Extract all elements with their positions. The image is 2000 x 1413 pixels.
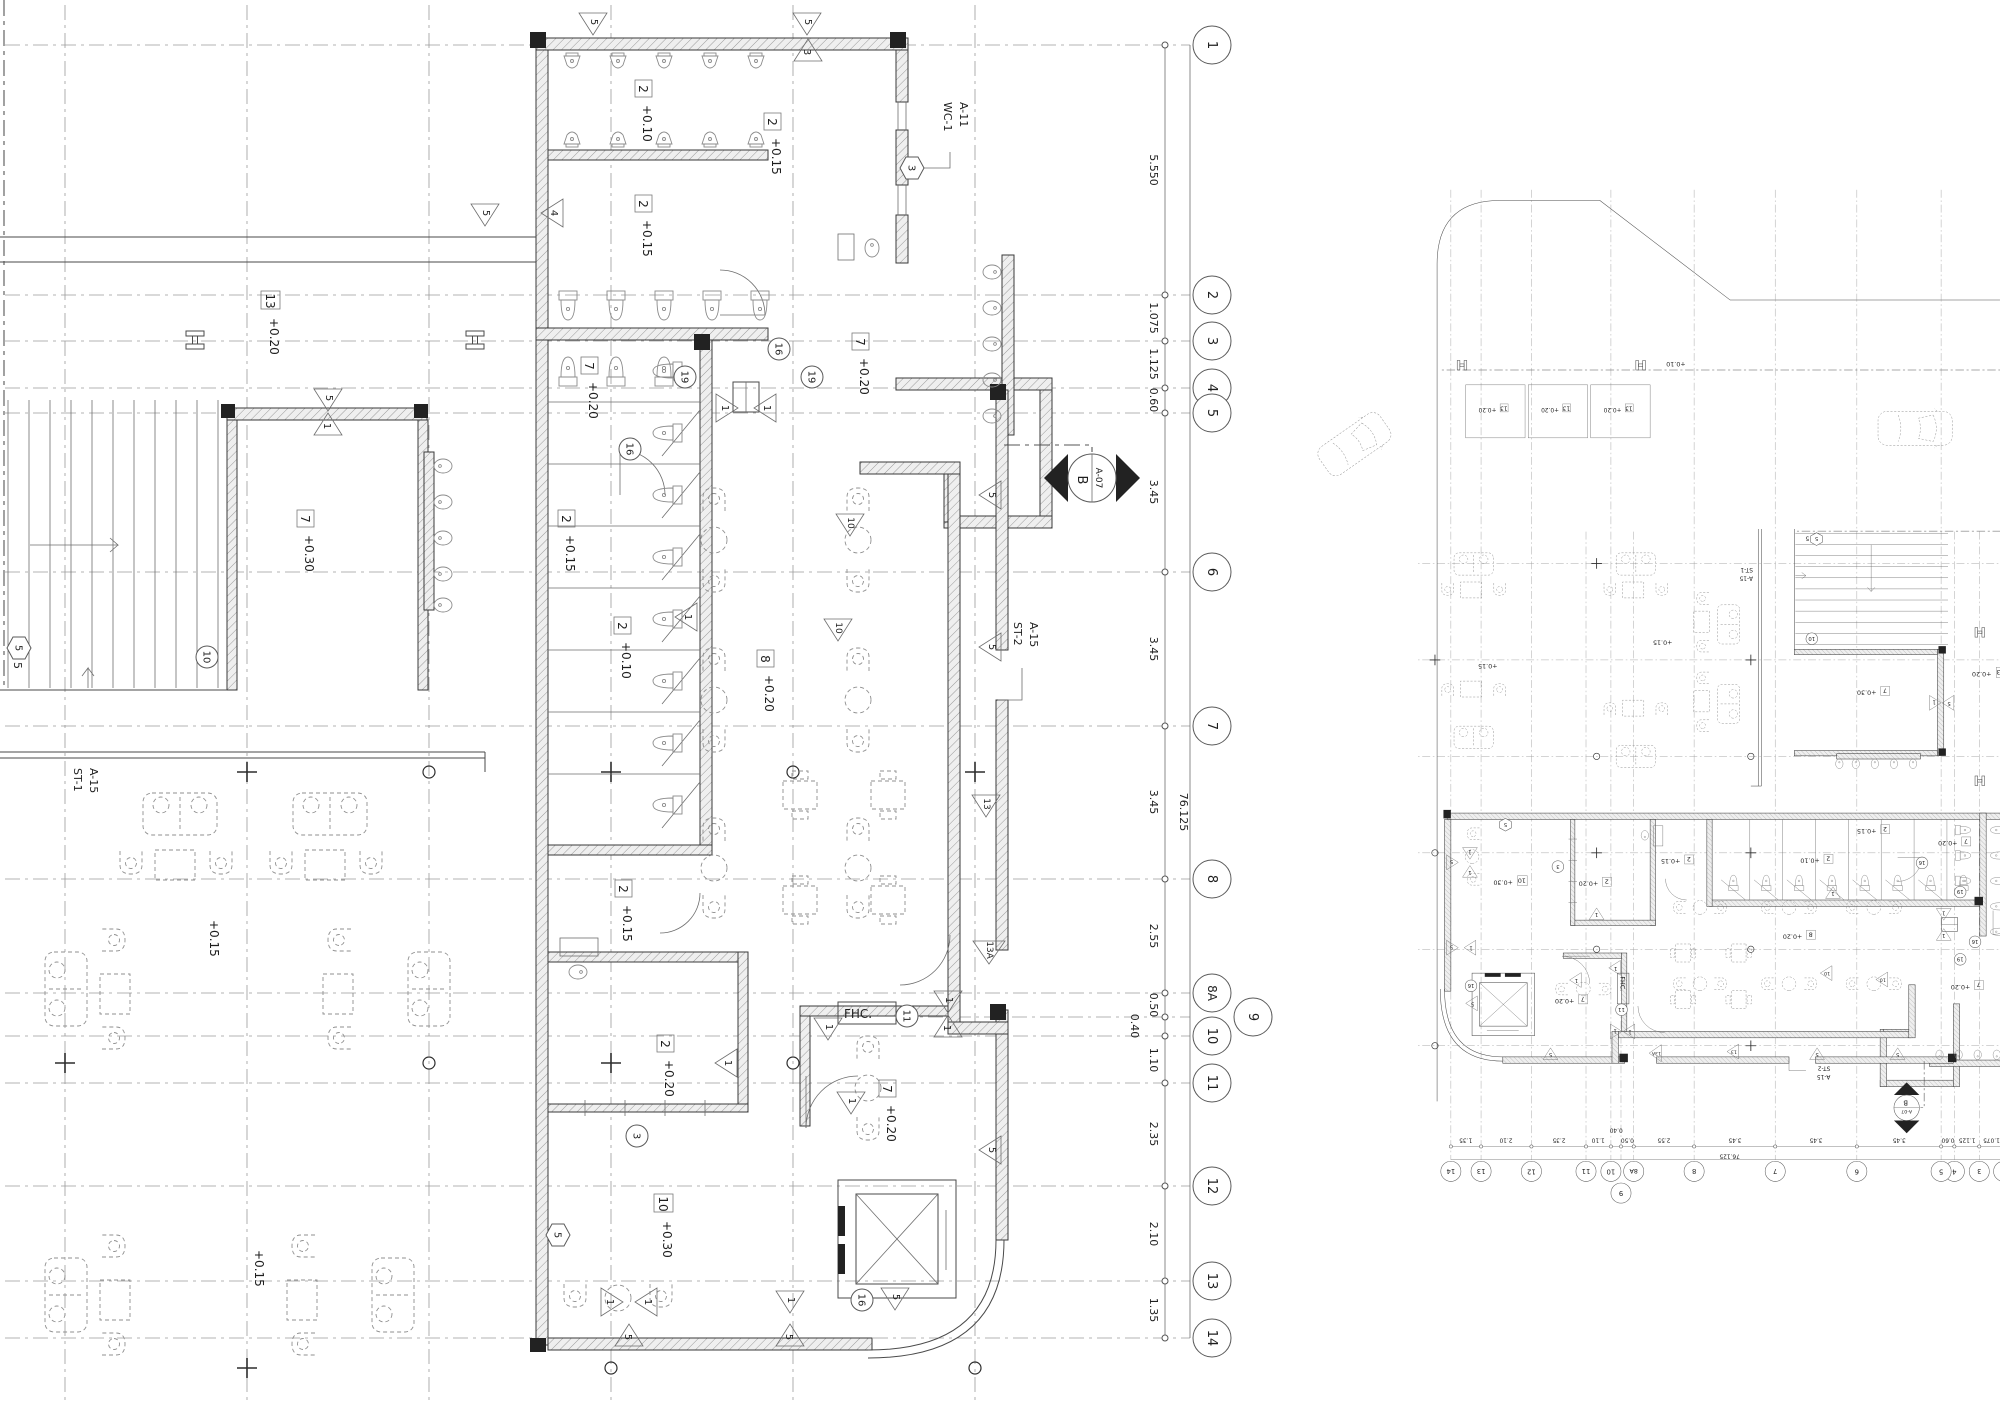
drawing-sheet: 5.550 1.075 1.125 0.60 3.45 3.45 3.45 2.… bbox=[0, 0, 2000, 1413]
floor-plan-canvas: 5.550 1.075 1.125 0.60 3.45 3.45 3.45 2.… bbox=[0, 0, 2000, 1413]
